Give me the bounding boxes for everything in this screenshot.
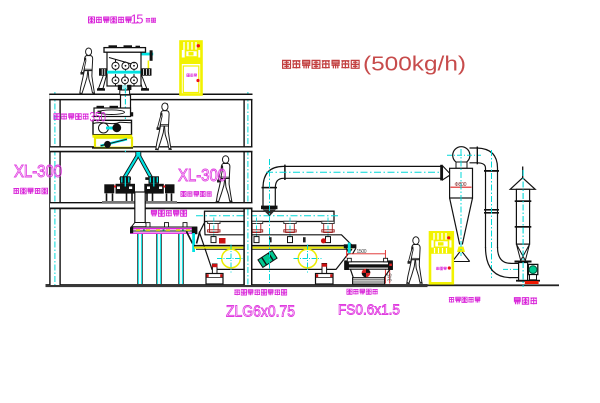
svg-text:350: 350 (90, 109, 107, 125)
svg-text:1500: 1500 (357, 249, 367, 255)
svg-text:XL-300: XL-300 (178, 165, 226, 185)
svg-text:XL-300: XL-300 (14, 161, 62, 181)
svg-text:ZLG6x0.75: ZLG6x0.75 (226, 304, 295, 321)
svg-text:345: 345 (388, 273, 394, 281)
svg-text:FS0.6x1.5: FS0.6x1.5 (338, 302, 400, 319)
svg-text:(500kg/h): (500kg/h) (363, 54, 466, 76)
svg-text:1.5: 1.5 (131, 12, 144, 27)
